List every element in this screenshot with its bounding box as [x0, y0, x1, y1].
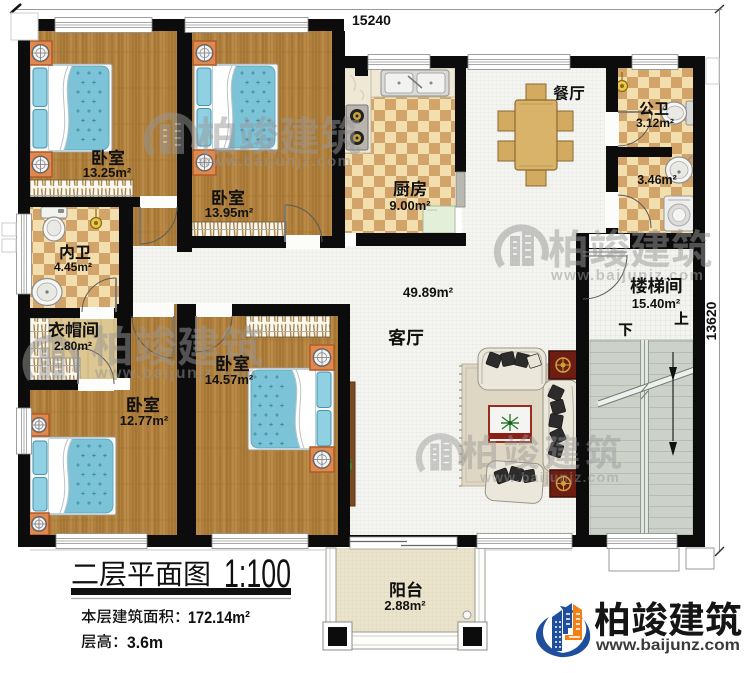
- svg-text:www.baijunjz.com: www.baijunjz.com: [198, 153, 352, 170]
- svg-text:www.baijunz.com: www.baijunz.com: [595, 637, 740, 654]
- svg-text:9.00m²: 9.00m²: [389, 198, 431, 213]
- svg-text:3.46m²: 3.46m²: [637, 173, 677, 187]
- svg-text:49.89m²: 49.89m²: [403, 285, 454, 300]
- svg-text:2.80m²: 2.80m²: [54, 339, 92, 353]
- svg-text:13620: 13620: [703, 301, 719, 340]
- svg-text:www.baijunjz.com: www.baijunjz.com: [479, 469, 620, 485]
- svg-text:172.14m²: 172.14m²: [188, 608, 250, 627]
- svg-text:3.12m²: 3.12m²: [636, 116, 674, 130]
- svg-text:12.77m²: 12.77m²: [120, 413, 169, 428]
- svg-text:14.57m²: 14.57m²: [205, 372, 254, 387]
- svg-text:2.88m²: 2.88m²: [384, 598, 426, 613]
- svg-text:15.40m²: 15.40m²: [632, 296, 681, 311]
- svg-text:13.95m²: 13.95m²: [205, 205, 254, 220]
- svg-text:15240: 15240: [352, 12, 391, 28]
- svg-text:3.6m: 3.6m: [127, 633, 163, 652]
- svg-text:4.45m²: 4.45m²: [54, 260, 92, 274]
- svg-text:13.25m²: 13.25m²: [83, 165, 132, 180]
